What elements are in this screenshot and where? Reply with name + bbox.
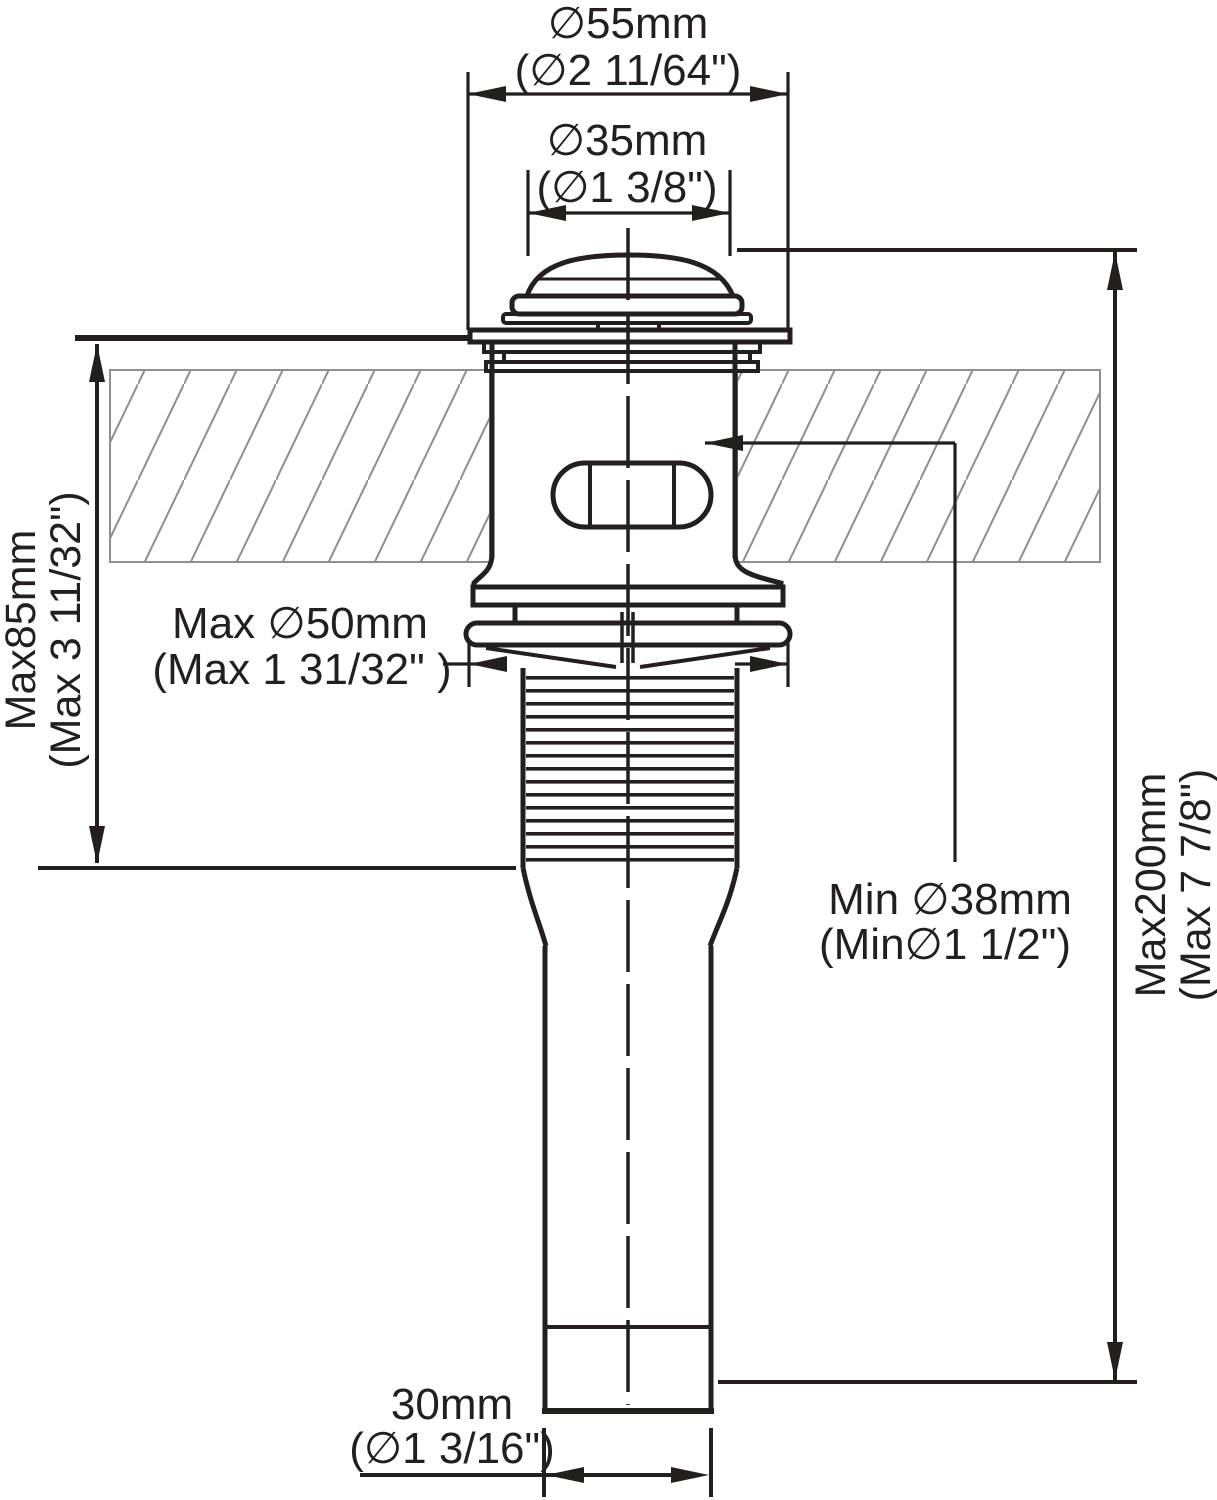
- countertop-section: [110, 370, 1100, 562]
- overall-length-imperial-label: (Max 7 7/8"): [1174, 769, 1217, 1002]
- flange-diameter-imperial-label: (∅2 11/64"): [515, 49, 742, 93]
- hole-diameter-metric-label: Min ∅38mm: [828, 878, 1072, 922]
- cap-diameter-metric-label: ∅35mm: [547, 119, 708, 163]
- overall-length-label: Max200mm (Max 7 7/8"): [1129, 769, 1217, 1002]
- thread-stripes: [526, 671, 734, 867]
- overall-length-metric-label: Max200mm: [1129, 769, 1174, 1002]
- tailpipe-diameter-metric-label: 30mm: [391, 1383, 513, 1427]
- nut-diameter-imperial-label: (Max 1 31/32" ): [152, 648, 451, 692]
- flange-diameter-metric-label: ∅55mm: [548, 2, 709, 46]
- deck-thickness-metric-label: Max85mm: [0, 491, 44, 768]
- nut-diameter-metric-label: Max ∅50mm: [172, 602, 428, 646]
- deck-thickness-imperial-label: (Max 3 11/32"): [44, 491, 89, 768]
- deck-thickness-label: Max85mm (Max 3 11/32"): [0, 491, 89, 768]
- hole-diameter-imperial-label: (Min∅1 1/2"): [819, 923, 1071, 967]
- drain-dimension-diagram: ∅55mm (∅2 11/64") ∅35mm (∅1 3/8") Max85m…: [0, 0, 1217, 1500]
- tailpipe-diameter-imperial-label: (∅1 3/16"): [349, 1427, 555, 1471]
- drain-line-drawing: [0, 0, 1217, 1500]
- cap-diameter-imperial-label: (∅1 3/8"): [536, 166, 717, 210]
